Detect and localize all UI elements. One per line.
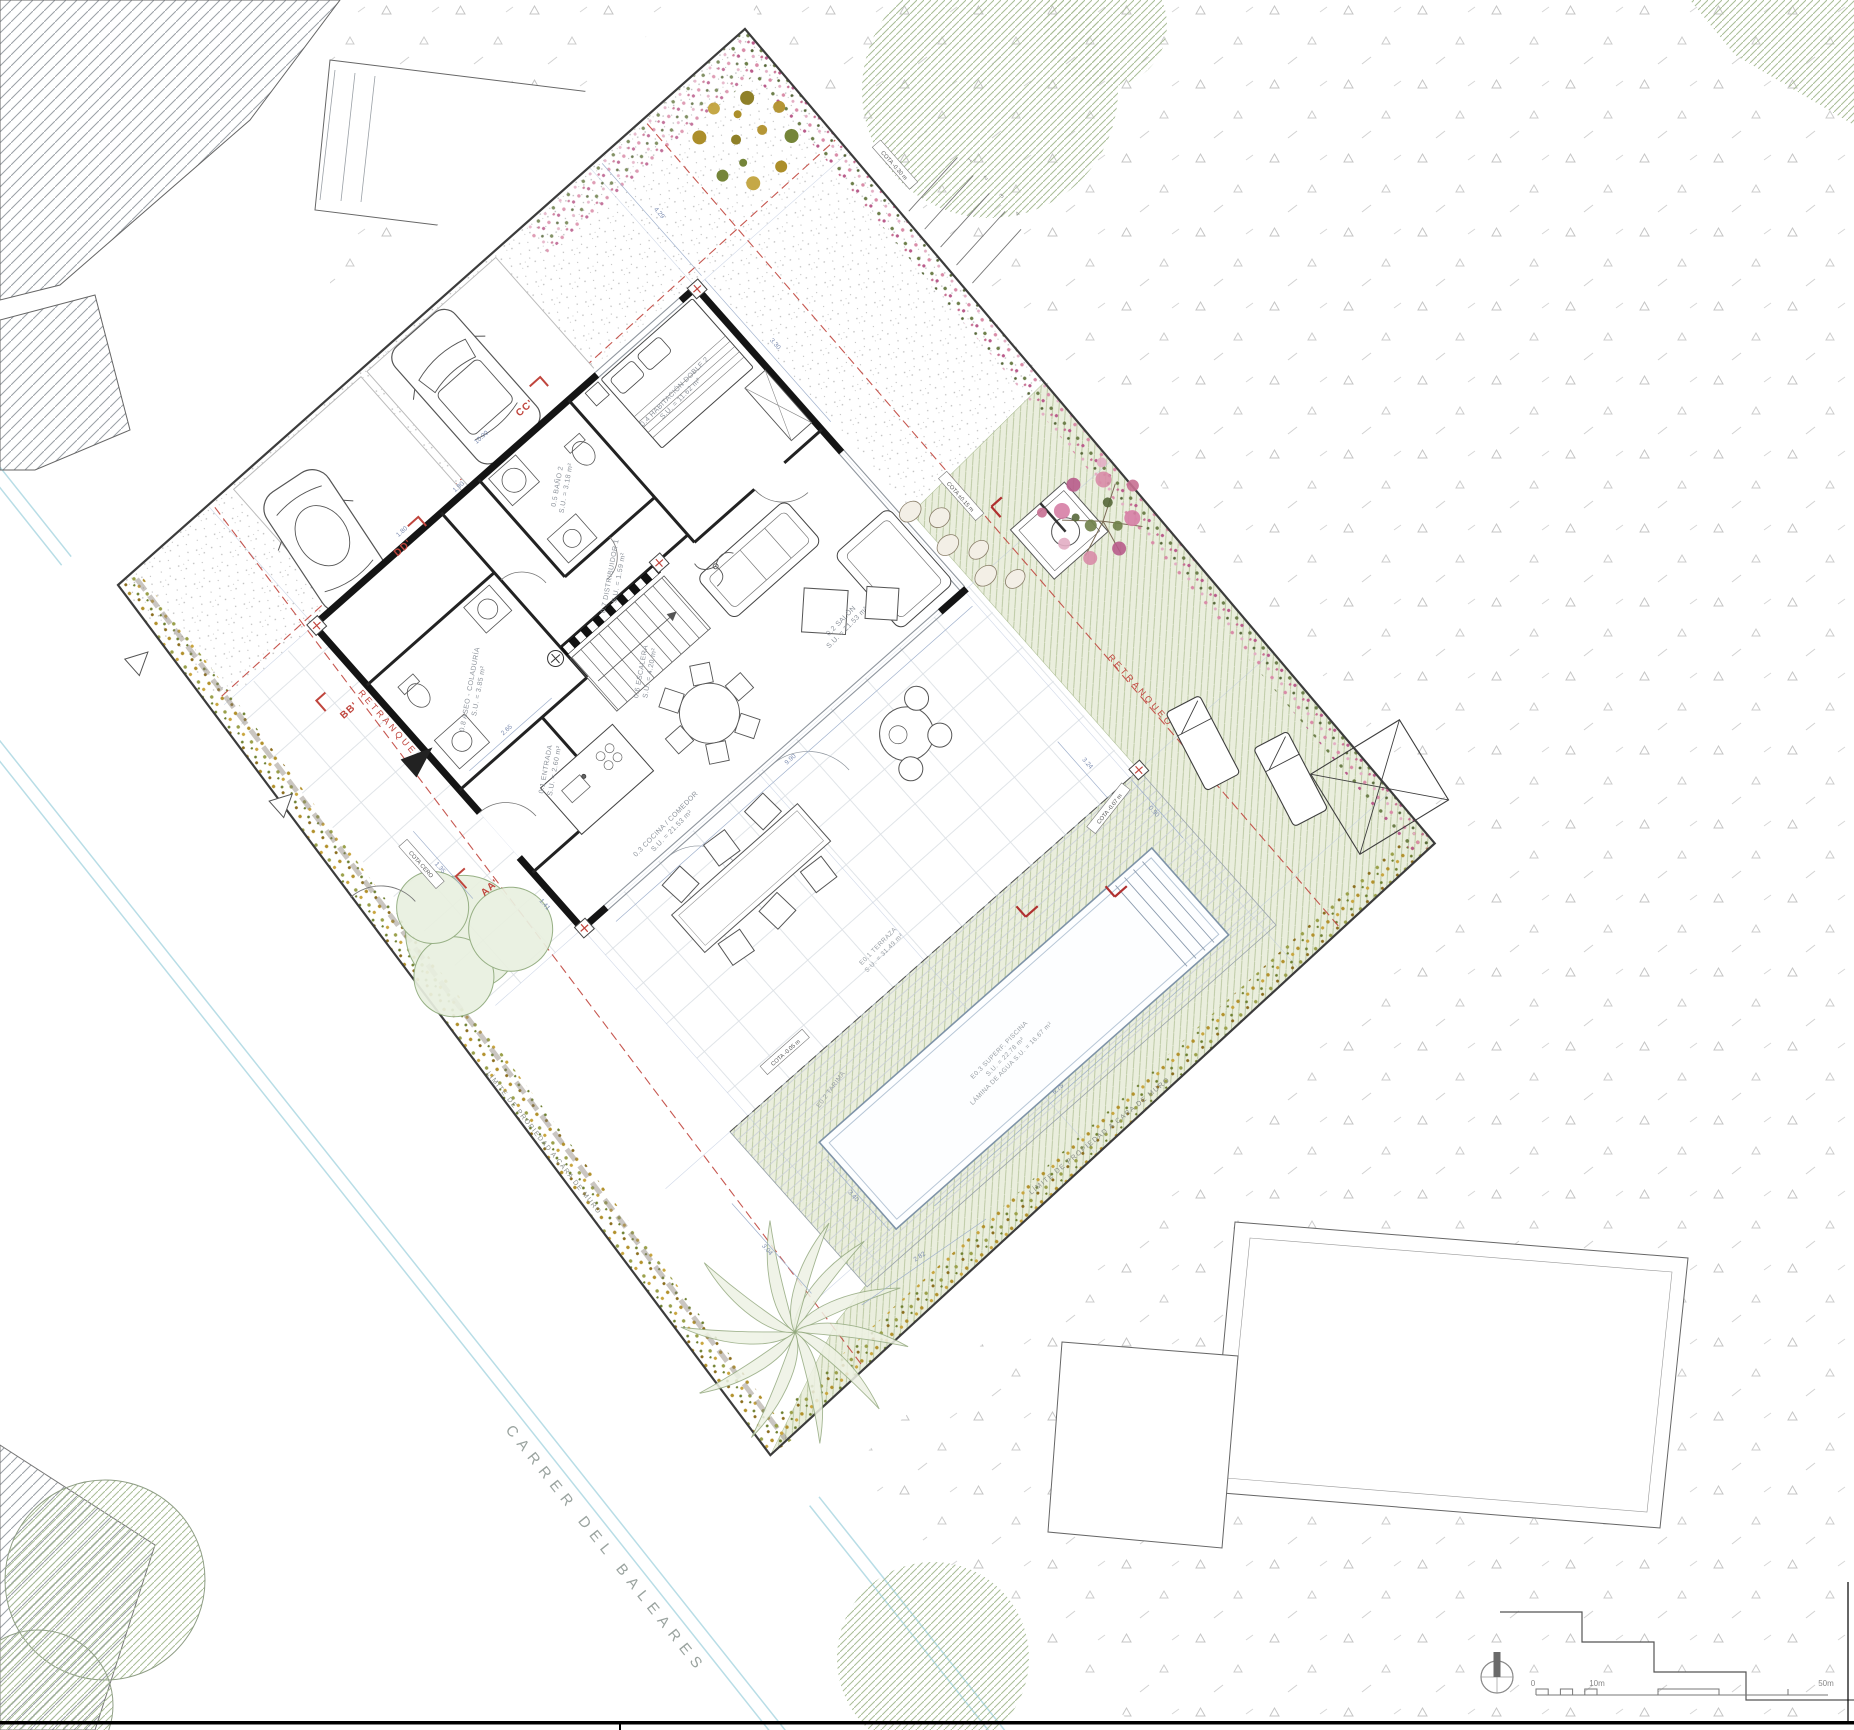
svg-text:2: 2 [983,175,990,182]
svg-text:1: 1 [967,157,974,164]
scale-fifty: 50m [1818,1679,1834,1688]
scale-ten: 10m [1589,1679,1605,1688]
scale-zero: 0 [1531,1679,1536,1688]
svg-text:3: 3 [999,193,1006,200]
site-plan-sheet: CARRER DEL BALEARES 0 10m 50m [0,0,1854,1730]
svg-text:4: 4 [1015,211,1022,218]
